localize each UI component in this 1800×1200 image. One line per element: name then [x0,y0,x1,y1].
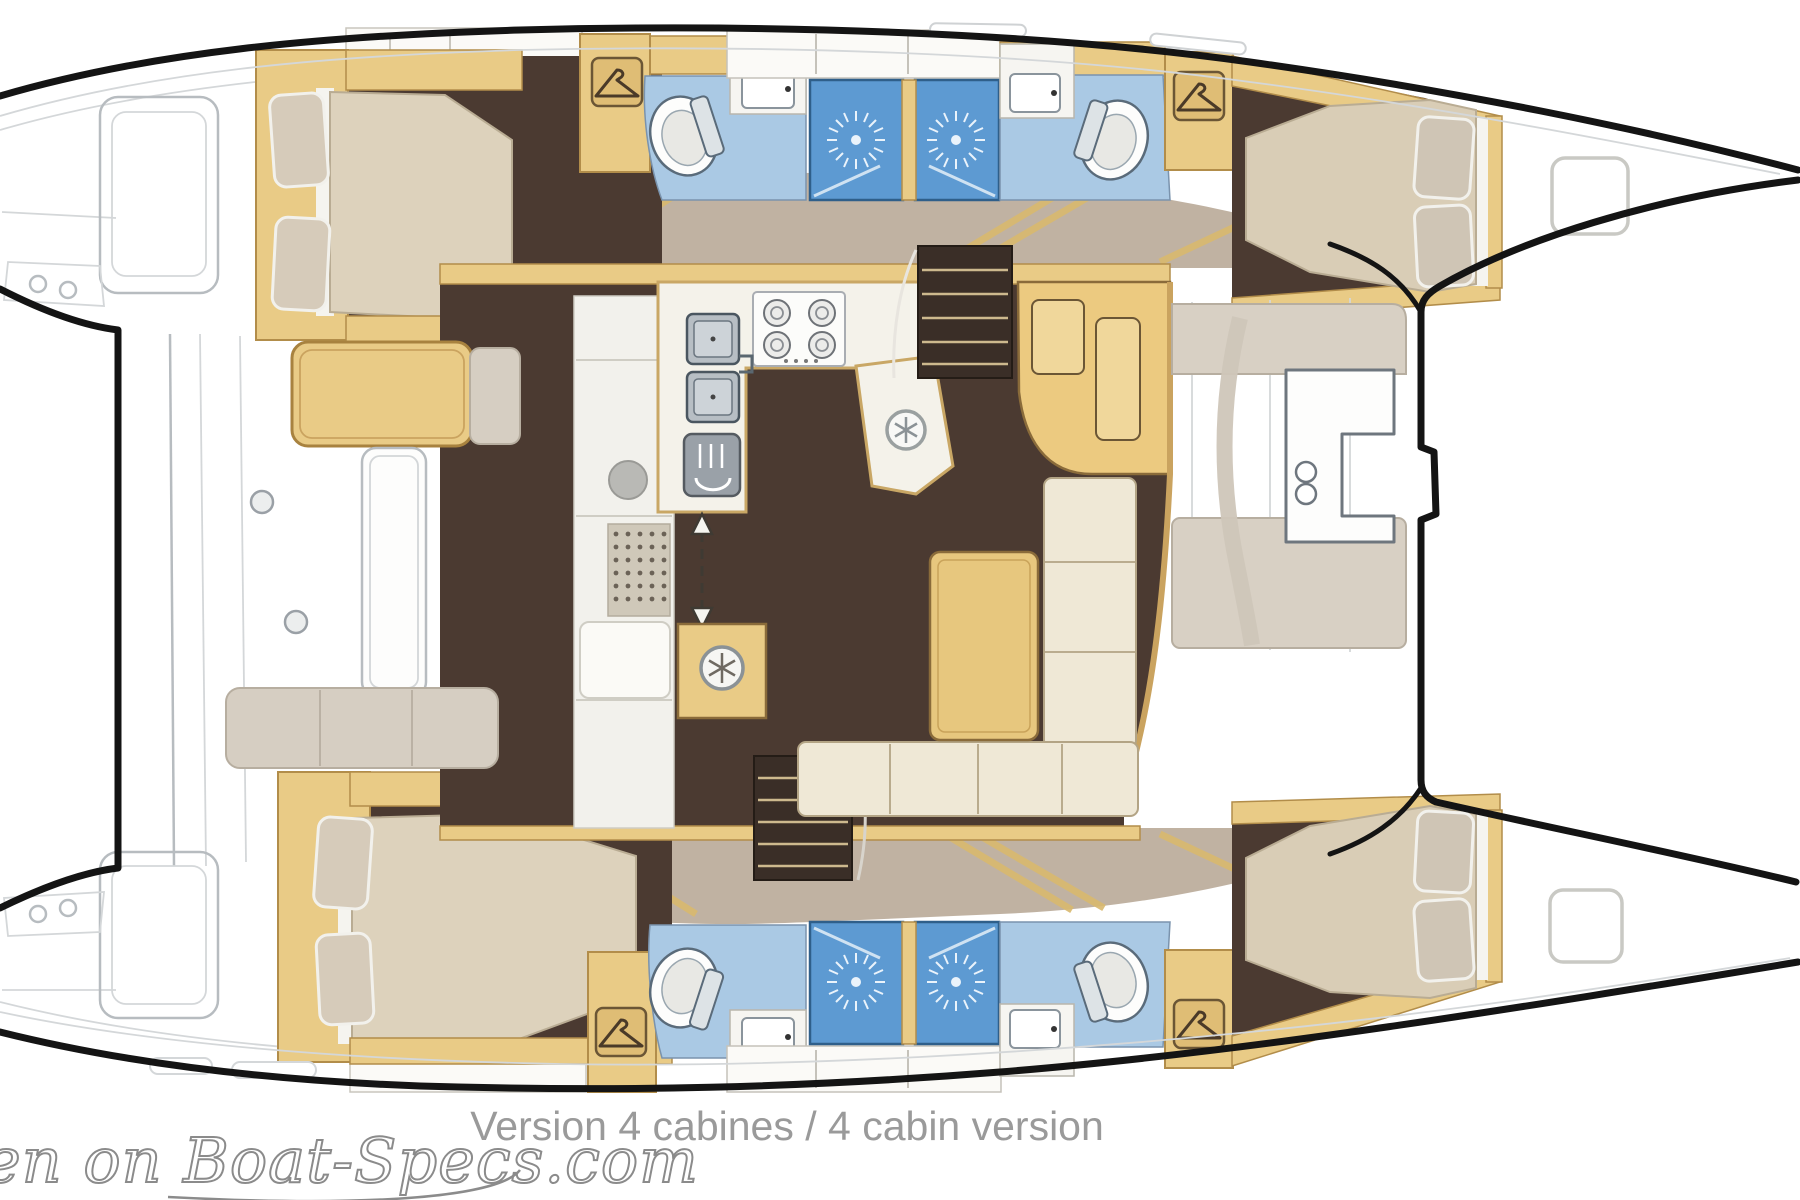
bathrooms-top [580,30,1233,200]
pillow [313,816,373,910]
cockpit-pad [470,348,520,444]
bed-headboard [1486,810,1502,982]
saloon-table [930,552,1038,740]
foredeck-console [1286,370,1394,542]
floor-grating [608,524,670,616]
catamaran-floorplan-diagram: Version 4 cabines / 4 cabin version en o… [0,0,1800,1200]
oven-icon [684,434,740,496]
nav-seat [1032,300,1084,374]
stove-icon [753,292,845,366]
pillow [272,217,331,312]
watermark: en on Boat-Specs.com [0,1124,699,1200]
nav-station [1018,282,1170,474]
snowflake-icon [701,647,743,689]
transom-hatch-bottom-inner [112,866,206,1004]
transom-hatch-top [100,97,218,293]
hanger-icon [596,1008,646,1056]
chart-table [1096,318,1140,440]
transom-hatch-top-inner [112,112,206,276]
cockpit-table [362,448,426,696]
watermark-text: en on Boat-Specs.com [0,1124,699,1197]
cockpit-bench-pad [226,688,498,768]
hanger-icon [1174,1000,1224,1048]
pillow [1413,898,1474,982]
winch-icon [285,611,307,633]
bathrooms-bottom [588,922,1233,1092]
hanger-icon [592,58,642,106]
snowflake-icon [887,411,925,449]
saloon [440,246,1170,880]
freezer-unit [678,624,766,718]
pillow [1413,116,1474,200]
foredeck [1172,298,1406,652]
hatch-circle [609,461,647,499]
hanger-icon [1174,72,1224,120]
boat-specs-floorplan-page: Version 4 cabines / 4 cabin version en o… [0,0,1800,1200]
pillow [316,933,375,1026]
transom-hatch-bottom [100,852,218,1018]
cupholder-icon [1296,462,1316,482]
deck-hatch [1550,890,1622,962]
foredeck-pad [1172,304,1406,374]
cockpit-bench-wood [292,342,472,446]
winch-icon [251,491,273,513]
pillow [269,92,329,188]
cupholder-icon [1296,484,1316,504]
pillow [1414,811,1474,894]
